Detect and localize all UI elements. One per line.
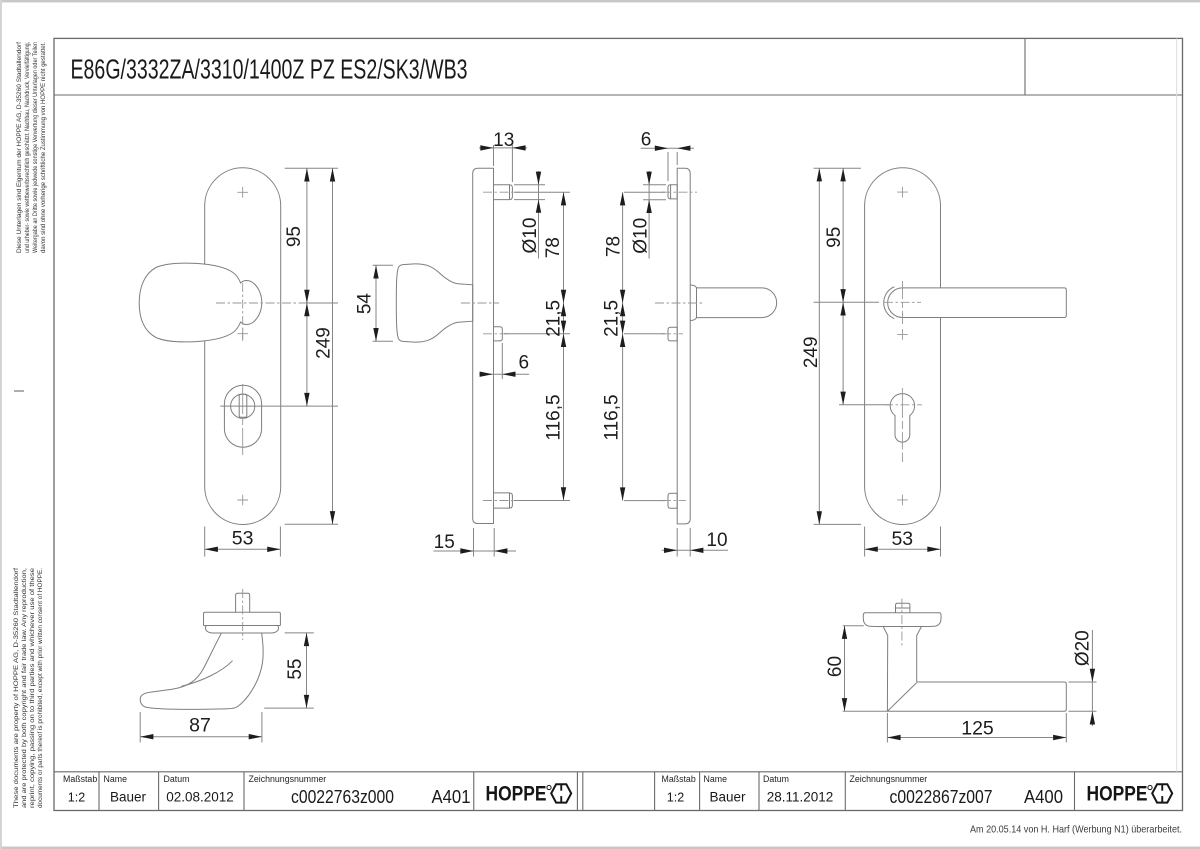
svg-text:125: 125 [961,718,994,740]
svg-text:Bauer: Bauer [110,790,147,805]
svg-text:Zeichnungsnummer: Zeichnungsnummer [850,774,928,784]
svg-text:Ø10: Ø10 [631,218,652,254]
svg-text:10: 10 [706,530,727,551]
svg-text:Diese Unterlagen sind Eigentum: Diese Unterlagen sind Eigentum der HOPPE… [16,42,23,253]
svg-text:Am 20.05.14 von H. Harf (Werbu: Am 20.05.14 von H. Harf (Werbung N1) übe… [970,824,1182,836]
svg-text:116,5: 116,5 [544,394,565,440]
svg-text:documents or parts thereof is: documents or parts thereof is prohibited… [37,568,44,808]
svg-text:78: 78 [543,237,564,258]
svg-text:Bauer: Bauer [709,790,746,805]
svg-text:c0022867z007: c0022867z007 [890,786,993,807]
svg-text:249: 249 [801,336,822,368]
svg-text:6: 6 [519,353,530,374]
svg-text:davon sind ohne vorherige schr: davon sind ohne vorherige schriftliche Z… [40,42,47,253]
svg-text:15: 15 [434,532,455,553]
svg-text:A400: A400 [1024,786,1063,807]
svg-text:Ø10: Ø10 [520,218,541,254]
svg-text:Datum: Datum [164,774,190,784]
svg-text:54: 54 [355,293,376,315]
svg-text:Name: Name [704,774,728,784]
svg-text:Name: Name [104,774,128,784]
svg-text:21,5: 21,5 [602,300,623,337]
svg-text:A401: A401 [432,786,471,807]
svg-text:02.08.2012: 02.08.2012 [166,790,234,805]
svg-text:53: 53 [232,528,254,550]
svg-text:78: 78 [604,236,625,257]
svg-text:116,5: 116,5 [602,394,623,440]
svg-text:and are protected by both copy: and are protected by both copyright and … [21,568,28,808]
svg-text:Weitergabe an Dritte sowie jed: Weitergabe an Dritte sowie jedwede sonst… [32,42,39,253]
svg-text:Maßstab: Maßstab [662,774,696,784]
svg-text:249: 249 [314,327,335,359]
svg-text:55: 55 [285,659,306,680]
svg-text:21,5: 21,5 [544,300,565,337]
svg-text:E86G/3332ZA/3310/1400Z PZ ES2/: E86G/3332ZA/3310/1400Z PZ ES2/SK3/WB3 [71,54,468,85]
svg-text:c0022763z000: c0022763z000 [291,786,394,807]
svg-text:95: 95 [284,226,305,247]
svg-text:Ø20: Ø20 [1073,630,1094,666]
svg-text:These documents are property o: These documents are property of HOPPE AG… [13,568,20,808]
svg-text:53: 53 [891,528,913,550]
svg-text:Zeichnungsnummer: Zeichnungsnummer [249,774,327,784]
svg-text:HOPPE: HOPPE [486,782,547,806]
svg-text:28.11.2012: 28.11.2012 [767,790,834,805]
svg-text:87: 87 [189,715,211,737]
svg-text:und urheber- sowie wettbewerbs: und urheber- sowie wettbewerbsrechtlich … [24,42,31,253]
svg-text:reprint, copying, passing on t: reprint, copying, passing on to third pa… [29,568,36,808]
svg-text:1:2: 1:2 [68,791,85,805]
svg-text:6: 6 [641,130,652,151]
svg-text:Datum: Datum [763,774,789,784]
svg-text:13: 13 [493,130,514,151]
svg-text:60: 60 [825,656,846,677]
svg-text:HOPPE: HOPPE [1087,782,1148,806]
svg-text:1:2: 1:2 [667,791,684,805]
svg-text:Maßstab: Maßstab [63,774,97,784]
svg-text:95: 95 [824,227,845,248]
